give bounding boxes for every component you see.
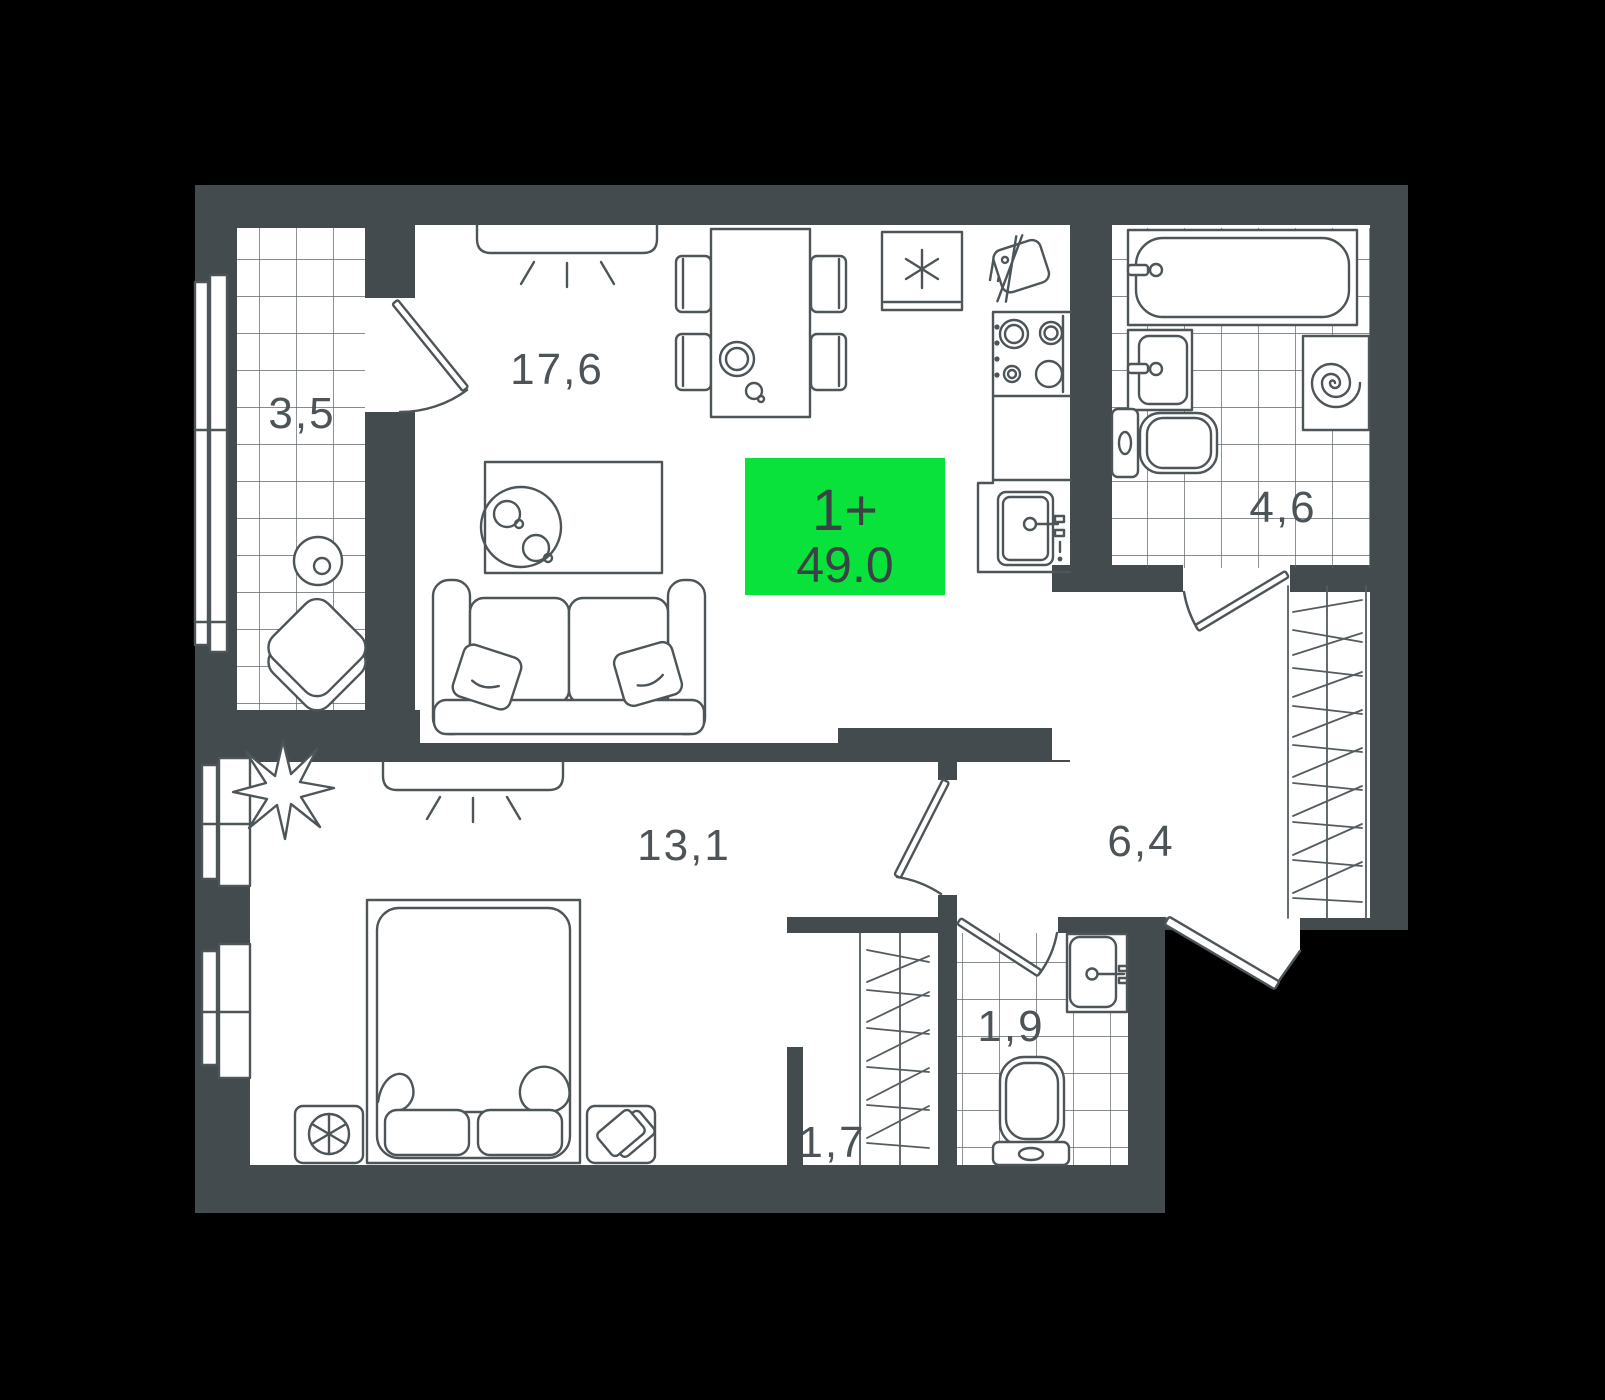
closet-area-label: 1,7 (798, 1118, 865, 1167)
bedroom-window-1 (202, 758, 250, 886)
wc-toilet-icon (993, 1057, 1069, 1165)
pillow (385, 1110, 469, 1155)
hall-area-label: 6,4 (1107, 817, 1174, 866)
loggia-window (195, 275, 227, 652)
living-kitchen-area-label: 17,6 (510, 345, 604, 394)
chair (811, 256, 846, 312)
bedroom-floor (250, 762, 938, 1165)
loggia-area-label: 3,5 (268, 389, 335, 438)
kitchen-sink-icon (998, 492, 1064, 565)
bathtub-icon (1128, 230, 1357, 325)
chair (676, 334, 711, 390)
floorplan-svg: 3,5 17,6 4,6 6,4 13,1 1,9 1,7 1+ 49.0 (0, 0, 1605, 1400)
badge-area-value: 49.0 (796, 537, 893, 593)
washing-machine-icon (1303, 336, 1369, 430)
hall-floor (1070, 588, 1288, 918)
badge-type-label: 1+ (812, 478, 878, 543)
nightstand-left (295, 1106, 363, 1163)
side-table-icon (294, 537, 342, 585)
wc-area-label: 1,9 (977, 1002, 1044, 1051)
pillow (478, 1110, 562, 1155)
chair (676, 256, 711, 312)
bathroom-area-label: 4,6 (1249, 483, 1316, 532)
apartment-badge: 1+ 49.0 (745, 458, 945, 595)
floorplan-canvas: 3,5 17,6 4,6 6,4 13,1 1,9 1,7 1+ 49.0 (0, 0, 1605, 1400)
nightstand-right (587, 1104, 657, 1164)
bedroom-window-2 (202, 944, 250, 1078)
bed (367, 900, 580, 1163)
chair (811, 334, 846, 390)
bathroom-sink-icon (1128, 330, 1192, 410)
coffee-table (481, 462, 662, 573)
toilet-icon (1112, 409, 1217, 477)
bedroom-area-label: 13,1 (637, 821, 731, 870)
fridge-icon (882, 232, 962, 310)
hall-passage-floor (955, 762, 1072, 917)
wc-sink-icon (1067, 934, 1127, 1012)
